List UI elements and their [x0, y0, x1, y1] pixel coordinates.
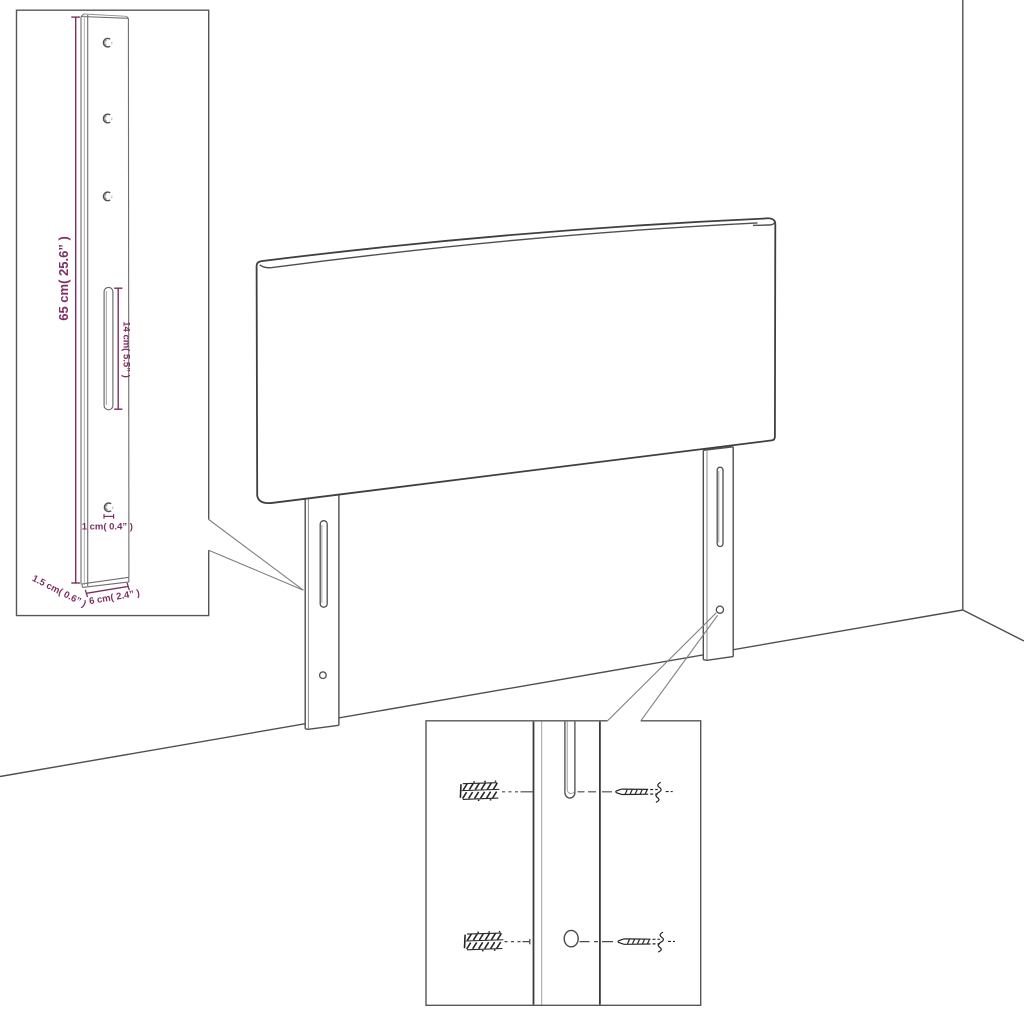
svg-text:1 cm( 0.4” ): 1 cm( 0.4” ) [82, 522, 133, 533]
svg-text:65 cm( 25.6” ): 65 cm( 25.6” ) [56, 236, 71, 321]
svg-text:14 cm( 5.5” ): 14 cm( 5.5” ) [120, 321, 131, 378]
svg-text:6 cm( 2.4” ): 6 cm( 2.4” ) [88, 588, 140, 607]
svg-text:1.5 cm( 0.6” ): 1.5 cm( 0.6” ) [30, 573, 88, 610]
